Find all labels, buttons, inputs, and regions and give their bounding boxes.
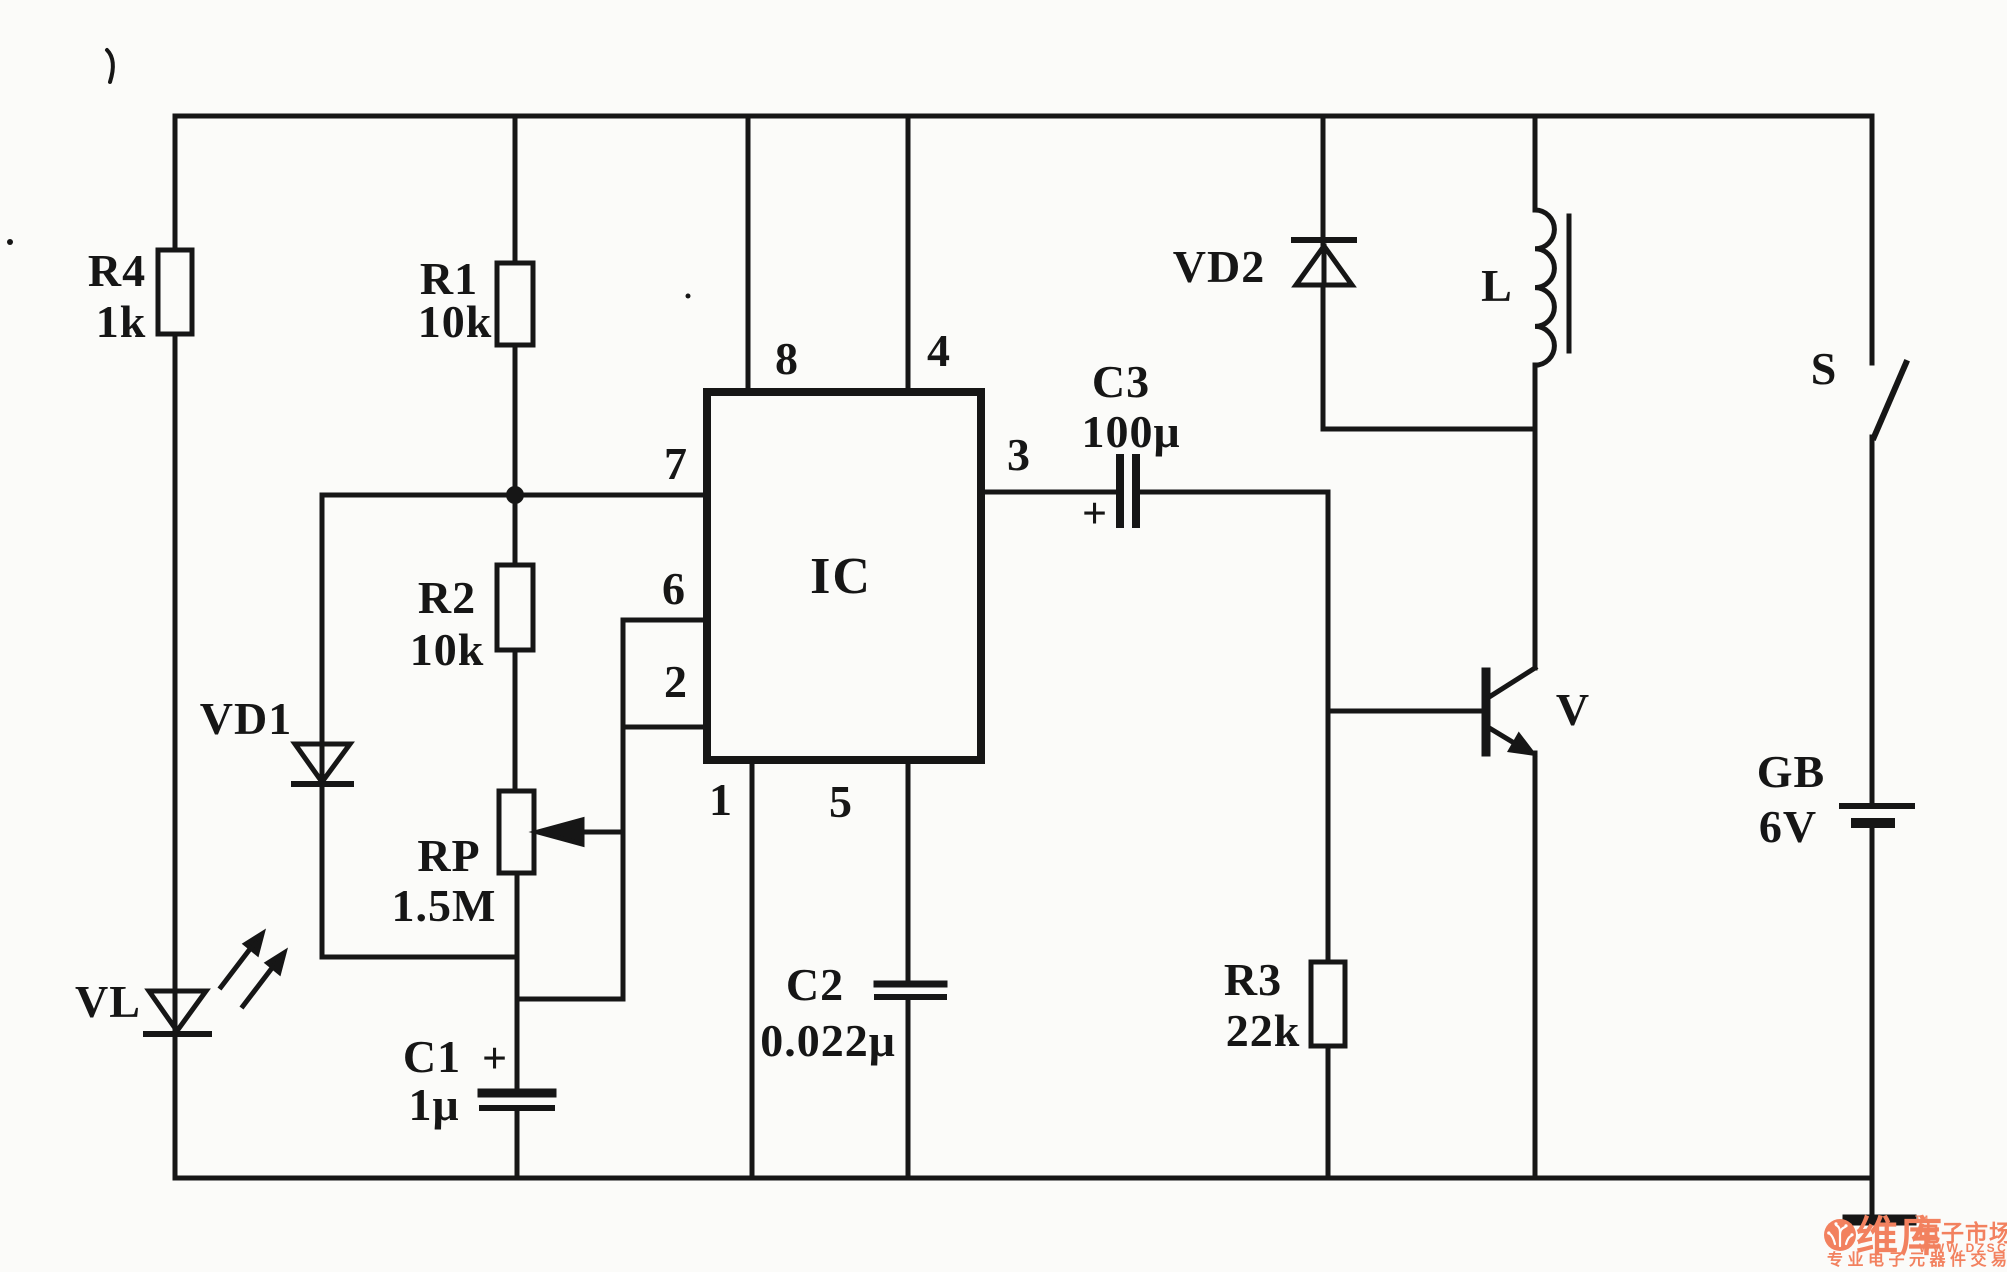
label-pin-2: 2 (664, 659, 688, 705)
label-c1-polarity: + (482, 1037, 508, 1081)
capacitor-c2-branch (877, 760, 944, 1178)
switch-blade (1874, 363, 1906, 437)
label-rp-value: 1.5M (392, 883, 497, 929)
led-vl (146, 934, 284, 1034)
label-v-ref: V (1556, 687, 1590, 733)
label-pin-6: 6 (662, 566, 686, 612)
resistor-r2 (497, 565, 533, 650)
label-pin-8: 8 (775, 336, 799, 382)
label-c2-value: 0.022μ (760, 1018, 896, 1064)
label-r2-ref: R2 (418, 575, 476, 621)
label-r1-value: 10k (418, 299, 493, 345)
label-vd2-ref: VD2 (1173, 244, 1265, 290)
dzsc-logo-icon (1823, 1218, 1857, 1252)
label-vl-ref: VL (75, 979, 141, 1025)
label-r2-value: 10k (410, 627, 485, 673)
label-c3-polarity: + (1082, 492, 1108, 536)
schematic-page: R4 1k R1 10k R2 10k VD1 RP 1.5M VL C1 + … (0, 0, 2007, 1272)
label-r4-value: 1k (96, 299, 147, 345)
label-c3-value: 100μ (1081, 409, 1180, 455)
label-ic: IC (810, 551, 872, 603)
resistor-r1 (497, 263, 533, 345)
label-pin-7: 7 (664, 441, 688, 487)
label-rp-ref: RP (417, 833, 480, 879)
label-pin-3: 3 (1007, 432, 1031, 478)
resistor-r3 (1311, 962, 1345, 1046)
label-pin-5: 5 (829, 779, 853, 825)
label-r3-ref: R3 (1224, 957, 1282, 1003)
label-l-ref: L (1481, 263, 1513, 309)
label-r3-value: 22k (1226, 1008, 1301, 1054)
watermark-tagline: 专业电子元器件交易网站 (1827, 1253, 2007, 1269)
rp-wiper-arrow (538, 820, 582, 844)
resistor-r4 (158, 250, 192, 334)
label-r4-ref: R4 (88, 248, 146, 294)
label-c3-ref: C3 (1092, 359, 1150, 405)
label-s-ref: S (1811, 346, 1838, 392)
label-gb-ref: GB (1757, 749, 1825, 795)
relay-coil-l (1535, 116, 1569, 668)
label-vd1-ref: VD1 (200, 696, 292, 742)
transistor-v (1486, 668, 1535, 1178)
label-c1-ref: C1 (403, 1034, 461, 1080)
label-c2-ref: C2 (786, 962, 844, 1008)
label-c1-value: 1μ (408, 1082, 459, 1128)
circuit-drawing (0, 0, 2007, 1272)
ic-block (707, 116, 981, 760)
label-pin-1: 1 (709, 777, 733, 823)
label-pin-4: 4 (927, 328, 951, 374)
label-gb-value: 6V (1759, 804, 1817, 850)
output-coupling (981, 458, 1486, 1178)
timing-chain (482, 116, 552, 1178)
battery-switch-branch (1842, 116, 1912, 1220)
